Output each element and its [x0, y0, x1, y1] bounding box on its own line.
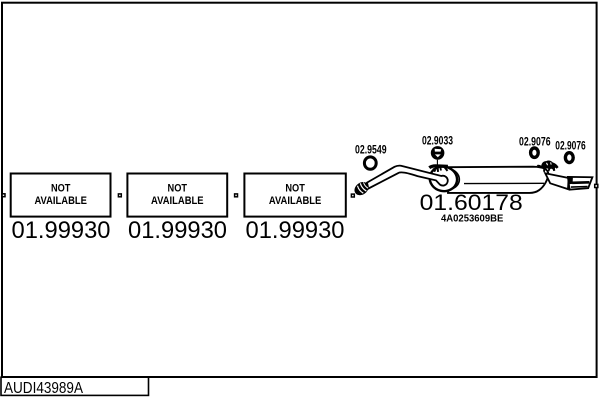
svg-text:AVAILABLE: AVAILABLE	[151, 195, 204, 207]
svg-text:02.9076: 02.9076	[555, 138, 586, 152]
svg-text:02.9549: 02.9549	[355, 143, 387, 157]
svg-text:02.9076: 02.9076	[519, 134, 551, 148]
svg-text:NOT: NOT	[168, 183, 188, 195]
svg-text:02.9033: 02.9033	[422, 133, 453, 147]
svg-text:NOT: NOT	[285, 183, 305, 195]
svg-text:AVAILABLE: AVAILABLE	[269, 195, 322, 207]
svg-text:01.99930: 01.99930	[12, 217, 111, 244]
svg-text:AVAILABLE: AVAILABLE	[34, 195, 87, 207]
svg-text:01.99930: 01.99930	[128, 217, 227, 244]
svg-text:AUDI43989A: AUDI43989A	[4, 380, 84, 397]
svg-text:NOT: NOT	[51, 183, 71, 195]
svg-text:01.99930: 01.99930	[246, 217, 345, 244]
svg-text:01.60178: 01.60178	[420, 190, 523, 215]
svg-text:4A0253609BE: 4A0253609BE	[441, 214, 503, 225]
